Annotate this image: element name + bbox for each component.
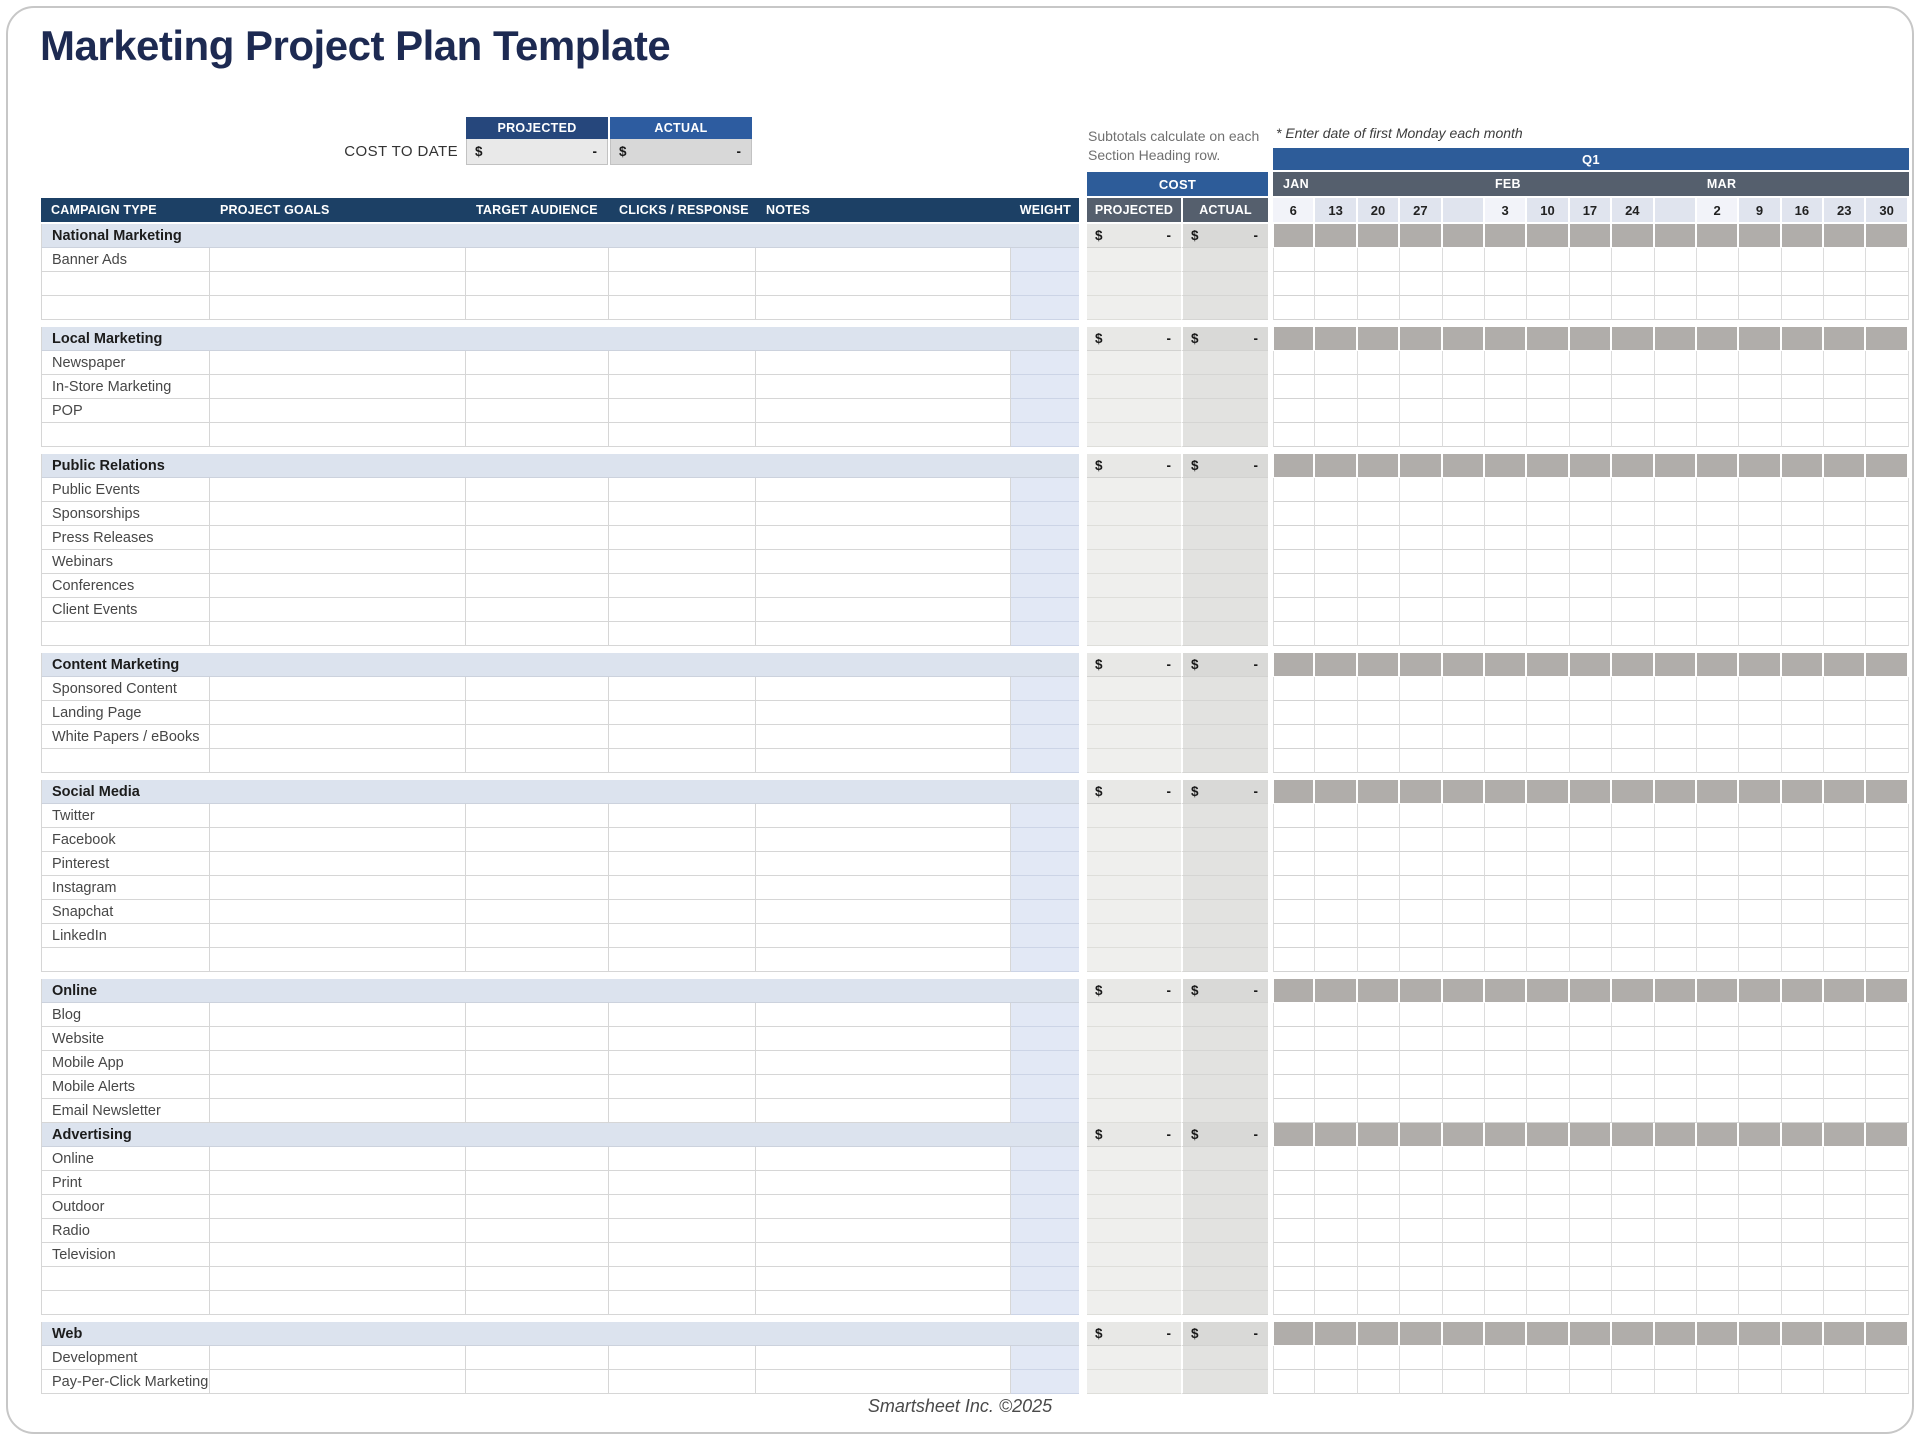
schedule-cell[interactable] (1866, 749, 1908, 773)
schedule-cell[interactable] (1655, 550, 1697, 574)
target-audience-cell[interactable] (466, 1003, 609, 1027)
actual-cost-cell[interactable] (1181, 248, 1268, 272)
project-goals-cell[interactable] (210, 1171, 466, 1195)
schedule-cell[interactable] (1570, 1003, 1612, 1027)
schedule-cell[interactable] (1315, 1267, 1357, 1291)
schedule-cell[interactable] (1782, 1099, 1824, 1123)
weight-cell[interactable] (1011, 248, 1079, 272)
schedule-cell[interactable] (1527, 399, 1569, 423)
schedule-cell[interactable] (1570, 1027, 1612, 1051)
schedule-cell[interactable] (1443, 804, 1485, 828)
schedule-cell[interactable] (1273, 1027, 1315, 1051)
notes-cell[interactable] (756, 1370, 1011, 1394)
actual-cost-cell[interactable] (1181, 852, 1268, 876)
schedule-cell[interactable] (1782, 876, 1824, 900)
project-goals-cell[interactable] (210, 1195, 466, 1219)
target-audience-cell[interactable] (466, 701, 609, 725)
schedule-cell[interactable] (1782, 948, 1824, 972)
weight-cell[interactable] (1011, 478, 1079, 502)
schedule-cell[interactable] (1782, 852, 1824, 876)
projected-cost-cell[interactable] (1087, 1346, 1181, 1370)
projected-cost-cell[interactable] (1087, 1195, 1181, 1219)
target-audience-cell[interactable] (466, 749, 609, 773)
schedule-cell[interactable] (1315, 598, 1357, 622)
projected-cost-cell[interactable] (1087, 622, 1181, 646)
schedule-cell[interactable] (1400, 1219, 1442, 1243)
schedule-cell[interactable] (1824, 399, 1866, 423)
schedule-cell[interactable] (1612, 1171, 1654, 1195)
schedule-cell[interactable] (1655, 478, 1697, 502)
schedule-cell[interactable] (1443, 1051, 1485, 1075)
schedule-cell[interactable] (1739, 1171, 1781, 1195)
schedule-cell[interactable] (1612, 701, 1654, 725)
schedule-cell[interactable] (1273, 1291, 1315, 1315)
schedule-cell[interactable] (1782, 423, 1824, 447)
schedule-cell[interactable] (1782, 1370, 1824, 1394)
schedule-cell[interactable] (1400, 1195, 1442, 1219)
schedule-cell[interactable] (1485, 1267, 1527, 1291)
schedule-cell[interactable] (1655, 296, 1697, 320)
schedule-cell[interactable] (1400, 924, 1442, 948)
notes-cell[interactable] (756, 248, 1011, 272)
schedule-cell[interactable] (1782, 375, 1824, 399)
schedule-cell[interactable] (1697, 852, 1739, 876)
schedule-cell[interactable] (1570, 900, 1612, 924)
schedule-cell[interactable] (1697, 1291, 1739, 1315)
schedule-cell[interactable] (1443, 948, 1485, 972)
actual-cost-cell[interactable] (1181, 399, 1268, 423)
schedule-cell[interactable] (1315, 1027, 1357, 1051)
schedule-cell[interactable] (1400, 1171, 1442, 1195)
schedule-cell[interactable] (1400, 622, 1442, 646)
schedule-cell[interactable] (1485, 1370, 1527, 1394)
clicks-response-cell[interactable] (609, 948, 756, 972)
schedule-cell[interactable] (1358, 1051, 1400, 1075)
schedule-cell[interactable] (1273, 502, 1315, 526)
schedule-cell[interactable] (1612, 852, 1654, 876)
schedule-cell[interactable] (1527, 876, 1569, 900)
notes-cell[interactable] (756, 1027, 1011, 1051)
schedule-cell[interactable] (1400, 1267, 1442, 1291)
notes-cell[interactable] (756, 296, 1011, 320)
schedule-cell[interactable] (1866, 701, 1908, 725)
schedule-cell[interactable] (1612, 1370, 1654, 1394)
schedule-cell[interactable] (1782, 1195, 1824, 1219)
schedule-cell[interactable] (1527, 423, 1569, 447)
schedule-cell[interactable] (1443, 1075, 1485, 1099)
actual-cost-cell[interactable] (1181, 478, 1268, 502)
target-audience-cell[interactable] (466, 598, 609, 622)
schedule-cell[interactable] (1527, 1243, 1569, 1267)
schedule-cell[interactable] (1697, 296, 1739, 320)
schedule-cell[interactable] (1697, 478, 1739, 502)
schedule-cell[interactable] (1315, 1219, 1357, 1243)
schedule-cell[interactable] (1527, 1370, 1569, 1394)
schedule-cell[interactable] (1315, 574, 1357, 598)
project-goals-cell[interactable] (210, 701, 466, 725)
projected-cost-cell[interactable] (1087, 677, 1181, 701)
clicks-response-cell[interactable] (609, 701, 756, 725)
schedule-cell[interactable] (1443, 1171, 1485, 1195)
schedule-cell[interactable] (1782, 296, 1824, 320)
weight-cell[interactable] (1011, 876, 1079, 900)
schedule-cell[interactable] (1570, 375, 1612, 399)
projected-cost-cell[interactable] (1087, 1147, 1181, 1171)
notes-cell[interactable] (756, 399, 1011, 423)
schedule-cell[interactable] (1358, 1346, 1400, 1370)
schedule-cell[interactable] (1612, 622, 1654, 646)
schedule-cell[interactable] (1824, 1075, 1866, 1099)
schedule-cell[interactable] (1527, 375, 1569, 399)
schedule-cell[interactable] (1739, 272, 1781, 296)
schedule-cell[interactable] (1485, 828, 1527, 852)
schedule-cell[interactable] (1400, 1075, 1442, 1099)
clicks-response-cell[interactable] (609, 598, 756, 622)
schedule-cell[interactable] (1655, 502, 1697, 526)
schedule-cell[interactable] (1527, 478, 1569, 502)
schedule-cell[interactable] (1655, 1291, 1697, 1315)
schedule-cell[interactable] (1570, 701, 1612, 725)
project-goals-cell[interactable] (210, 828, 466, 852)
actual-cost-cell[interactable] (1181, 1195, 1268, 1219)
schedule-cell[interactable] (1315, 948, 1357, 972)
schedule-cell[interactable] (1739, 828, 1781, 852)
schedule-cell[interactable] (1782, 1267, 1824, 1291)
schedule-cell[interactable] (1739, 1219, 1781, 1243)
schedule-cell[interactable] (1315, 725, 1357, 749)
schedule-cell[interactable] (1400, 1291, 1442, 1315)
schedule-cell[interactable] (1739, 701, 1781, 725)
weight-cell[interactable] (1011, 900, 1079, 924)
date-header-cell-feb-3[interactable]: 3 (1485, 198, 1527, 222)
notes-cell[interactable] (756, 948, 1011, 972)
schedule-cell[interactable] (1443, 749, 1485, 773)
schedule-cell[interactable] (1739, 924, 1781, 948)
schedule-cell[interactable] (1697, 1346, 1739, 1370)
schedule-cell[interactable] (1485, 296, 1527, 320)
schedule-cell[interactable] (1443, 1219, 1485, 1243)
schedule-cell[interactable] (1697, 423, 1739, 447)
schedule-cell[interactable] (1782, 351, 1824, 375)
schedule-cell[interactable] (1485, 1291, 1527, 1315)
project-goals-cell[interactable] (210, 924, 466, 948)
schedule-cell[interactable] (1400, 375, 1442, 399)
date-header-cell-mar-2[interactable]: 2 (1697, 198, 1739, 222)
schedule-cell[interactable] (1612, 502, 1654, 526)
project-goals-cell[interactable] (210, 876, 466, 900)
project-goals-cell[interactable] (210, 550, 466, 574)
schedule-cell[interactable] (1273, 1370, 1315, 1394)
notes-cell[interactable] (756, 1171, 1011, 1195)
clicks-response-cell[interactable] (609, 1171, 756, 1195)
projected-cost-cell[interactable] (1087, 1267, 1181, 1291)
schedule-cell[interactable] (1485, 1003, 1527, 1027)
schedule-cell[interactable] (1400, 502, 1442, 526)
weight-cell[interactable] (1011, 351, 1079, 375)
schedule-cell[interactable] (1866, 248, 1908, 272)
schedule-cell[interactable] (1612, 598, 1654, 622)
actual-cost-cell[interactable] (1181, 948, 1268, 972)
schedule-cell[interactable] (1358, 478, 1400, 502)
clicks-response-cell[interactable] (609, 550, 756, 574)
schedule-cell[interactable] (1739, 375, 1781, 399)
schedule-cell[interactable] (1655, 1346, 1697, 1370)
schedule-cell[interactable] (1527, 1147, 1569, 1171)
schedule-cell[interactable] (1866, 852, 1908, 876)
schedule-cell[interactable] (1485, 351, 1527, 375)
projected-cost-cell[interactable] (1087, 828, 1181, 852)
schedule-cell[interactable] (1697, 1003, 1739, 1027)
weight-cell[interactable] (1011, 725, 1079, 749)
schedule-cell[interactable] (1400, 852, 1442, 876)
clicks-response-cell[interactable] (609, 296, 756, 320)
notes-cell[interactable] (756, 502, 1011, 526)
actual-cost-cell[interactable] (1181, 622, 1268, 646)
schedule-cell[interactable] (1782, 1075, 1824, 1099)
schedule-cell[interactable] (1315, 1243, 1357, 1267)
schedule-cell[interactable] (1315, 1346, 1357, 1370)
date-header-cell-feb-10[interactable]: 10 (1527, 198, 1569, 222)
schedule-cell[interactable] (1485, 1219, 1527, 1243)
schedule-cell[interactable] (1655, 574, 1697, 598)
schedule-cell[interactable] (1358, 1219, 1400, 1243)
schedule-cell[interactable] (1273, 828, 1315, 852)
schedule-cell[interactable] (1443, 502, 1485, 526)
schedule-cell[interactable] (1612, 924, 1654, 948)
project-goals-cell[interactable] (210, 1219, 466, 1243)
schedule-cell[interactable] (1697, 1267, 1739, 1291)
schedule-cell[interactable] (1358, 701, 1400, 725)
schedule-cell[interactable] (1824, 272, 1866, 296)
clicks-response-cell[interactable] (609, 1219, 756, 1243)
schedule-cell[interactable] (1824, 1370, 1866, 1394)
schedule-cell[interactable] (1358, 574, 1400, 598)
target-audience-cell[interactable] (466, 804, 609, 828)
schedule-cell[interactable] (1739, 900, 1781, 924)
schedule-cell[interactable] (1358, 725, 1400, 749)
schedule-cell[interactable] (1655, 725, 1697, 749)
schedule-cell[interactable] (1824, 701, 1866, 725)
schedule-cell[interactable] (1697, 1051, 1739, 1075)
schedule-cell[interactable] (1273, 1195, 1315, 1219)
schedule-cell[interactable] (1866, 924, 1908, 948)
schedule-cell[interactable] (1358, 502, 1400, 526)
schedule-cell[interactable] (1570, 526, 1612, 550)
schedule-cell[interactable] (1612, 1291, 1654, 1315)
clicks-response-cell[interactable] (609, 1075, 756, 1099)
project-goals-cell[interactable] (210, 1243, 466, 1267)
schedule-cell[interactable] (1655, 1003, 1697, 1027)
schedule-cell[interactable] (1570, 598, 1612, 622)
schedule-cell[interactable] (1570, 1147, 1612, 1171)
clicks-response-cell[interactable] (609, 1291, 756, 1315)
schedule-cell[interactable] (1612, 1195, 1654, 1219)
schedule-cell[interactable] (1655, 622, 1697, 646)
schedule-cell[interactable] (1570, 550, 1612, 574)
schedule-cell[interactable] (1443, 296, 1485, 320)
projected-cost-cell[interactable] (1087, 296, 1181, 320)
schedule-cell[interactable] (1443, 828, 1485, 852)
projected-cost-cell[interactable] (1087, 1243, 1181, 1267)
schedule-cell[interactable] (1400, 900, 1442, 924)
schedule-cell[interactable] (1527, 502, 1569, 526)
schedule-cell[interactable] (1739, 248, 1781, 272)
schedule-cell[interactable] (1315, 1099, 1357, 1123)
schedule-cell[interactable] (1400, 351, 1442, 375)
schedule-cell[interactable] (1697, 1099, 1739, 1123)
schedule-cell[interactable] (1400, 1147, 1442, 1171)
schedule-cell[interactable] (1485, 478, 1527, 502)
notes-cell[interactable] (756, 375, 1011, 399)
schedule-cell[interactable] (1527, 1051, 1569, 1075)
schedule-cell[interactable] (1866, 1051, 1908, 1075)
schedule-cell[interactable] (1782, 1291, 1824, 1315)
weight-cell[interactable] (1011, 574, 1079, 598)
weight-cell[interactable] (1011, 550, 1079, 574)
actual-cost-cell[interactable] (1181, 423, 1268, 447)
schedule-cell[interactable] (1527, 248, 1569, 272)
actual-cost-cell[interactable] (1181, 1346, 1268, 1370)
schedule-cell[interactable] (1866, 1219, 1908, 1243)
project-goals-cell[interactable] (210, 502, 466, 526)
schedule-cell[interactable] (1485, 749, 1527, 773)
project-goals-cell[interactable] (210, 526, 466, 550)
schedule-cell[interactable] (1315, 677, 1357, 701)
schedule-cell[interactable] (1655, 1370, 1697, 1394)
notes-cell[interactable] (756, 550, 1011, 574)
weight-cell[interactable] (1011, 924, 1079, 948)
date-header-cell-jan-20[interactable]: 20 (1358, 198, 1400, 222)
clicks-response-cell[interactable] (609, 852, 756, 876)
weight-cell[interactable] (1011, 296, 1079, 320)
target-audience-cell[interactable] (466, 1075, 609, 1099)
notes-cell[interactable] (756, 852, 1011, 876)
schedule-cell[interactable] (1527, 900, 1569, 924)
schedule-cell[interactable] (1443, 1027, 1485, 1051)
schedule-cell[interactable] (1443, 1003, 1485, 1027)
schedule-cell[interactable] (1570, 622, 1612, 646)
schedule-cell[interactable] (1739, 1075, 1781, 1099)
schedule-cell[interactable] (1315, 804, 1357, 828)
schedule-cell[interactable] (1782, 550, 1824, 574)
schedule-cell[interactable] (1485, 550, 1527, 574)
projected-cost-cell[interactable] (1087, 423, 1181, 447)
schedule-cell[interactable] (1400, 804, 1442, 828)
schedule-cell[interactable] (1485, 423, 1527, 447)
schedule-cell[interactable] (1697, 804, 1739, 828)
schedule-cell[interactable] (1866, 677, 1908, 701)
project-goals-cell[interactable] (210, 1267, 466, 1291)
schedule-cell[interactable] (1358, 1267, 1400, 1291)
schedule-cell[interactable] (1697, 876, 1739, 900)
schedule-cell[interactable] (1570, 1099, 1612, 1123)
target-audience-cell[interactable] (466, 1051, 609, 1075)
project-goals-cell[interactable] (210, 375, 466, 399)
schedule-cell[interactable] (1824, 296, 1866, 320)
date-header-cell-feb-24[interactable]: 24 (1612, 198, 1654, 222)
schedule-cell[interactable] (1824, 1099, 1866, 1123)
weight-cell[interactable] (1011, 375, 1079, 399)
schedule-cell[interactable] (1315, 502, 1357, 526)
schedule-cell[interactable] (1273, 852, 1315, 876)
schedule-cell[interactable] (1824, 804, 1866, 828)
weight-cell[interactable] (1011, 1291, 1079, 1315)
schedule-cell[interactable] (1739, 550, 1781, 574)
schedule-cell[interactable] (1697, 677, 1739, 701)
schedule-cell[interactable] (1612, 478, 1654, 502)
schedule-cell[interactable] (1527, 574, 1569, 598)
schedule-cell[interactable] (1400, 598, 1442, 622)
target-audience-cell[interactable] (466, 1243, 609, 1267)
schedule-cell[interactable] (1866, 948, 1908, 972)
schedule-cell[interactable] (1570, 502, 1612, 526)
weight-cell[interactable] (1011, 852, 1079, 876)
notes-cell[interactable] (756, 749, 1011, 773)
projected-cost-cell[interactable] (1087, 948, 1181, 972)
schedule-cell[interactable] (1527, 526, 1569, 550)
schedule-cell[interactable] (1485, 852, 1527, 876)
target-audience-cell[interactable] (466, 574, 609, 598)
actual-cost-cell[interactable] (1181, 598, 1268, 622)
project-goals-cell[interactable] (210, 296, 466, 320)
schedule-cell[interactable] (1612, 574, 1654, 598)
schedule-cell[interactable] (1527, 598, 1569, 622)
schedule-cell[interactable] (1443, 1147, 1485, 1171)
schedule-cell[interactable] (1527, 1027, 1569, 1051)
schedule-cell[interactable] (1655, 1027, 1697, 1051)
schedule-cell[interactable] (1782, 749, 1824, 773)
notes-cell[interactable] (756, 598, 1011, 622)
schedule-cell[interactable] (1824, 550, 1866, 574)
schedule-cell[interactable] (1315, 828, 1357, 852)
target-audience-cell[interactable] (466, 677, 609, 701)
schedule-cell[interactable] (1485, 622, 1527, 646)
schedule-cell[interactable] (1443, 351, 1485, 375)
target-audience-cell[interactable] (466, 1291, 609, 1315)
schedule-cell[interactable] (1570, 677, 1612, 701)
schedule-cell[interactable] (1697, 502, 1739, 526)
schedule-cell[interactable] (1400, 423, 1442, 447)
schedule-cell[interactable] (1273, 804, 1315, 828)
schedule-cell[interactable] (1485, 701, 1527, 725)
project-goals-cell[interactable] (210, 948, 466, 972)
schedule-cell[interactable] (1739, 351, 1781, 375)
schedule-cell[interactable] (1739, 1051, 1781, 1075)
schedule-cell[interactable] (1527, 351, 1569, 375)
weight-cell[interactable] (1011, 272, 1079, 296)
schedule-cell[interactable] (1612, 804, 1654, 828)
project-goals-cell[interactable] (210, 852, 466, 876)
schedule-cell[interactable] (1485, 1027, 1527, 1051)
schedule-cell[interactable] (1697, 1219, 1739, 1243)
target-audience-cell[interactable] (466, 478, 609, 502)
clicks-response-cell[interactable] (609, 574, 756, 598)
project-goals-cell[interactable] (210, 900, 466, 924)
schedule-cell[interactable] (1612, 725, 1654, 749)
schedule-cell[interactable] (1655, 1171, 1697, 1195)
schedule-cell[interactable] (1527, 948, 1569, 972)
schedule-cell[interactable] (1400, 1370, 1442, 1394)
weight-cell[interactable] (1011, 1147, 1079, 1171)
schedule-cell[interactable] (1570, 749, 1612, 773)
notes-cell[interactable] (756, 1219, 1011, 1243)
schedule-cell[interactable] (1824, 1171, 1866, 1195)
schedule-cell[interactable] (1273, 725, 1315, 749)
clicks-response-cell[interactable] (609, 351, 756, 375)
clicks-response-cell[interactable] (609, 272, 756, 296)
schedule-cell[interactable] (1570, 1051, 1612, 1075)
actual-cost-cell[interactable] (1181, 1219, 1268, 1243)
